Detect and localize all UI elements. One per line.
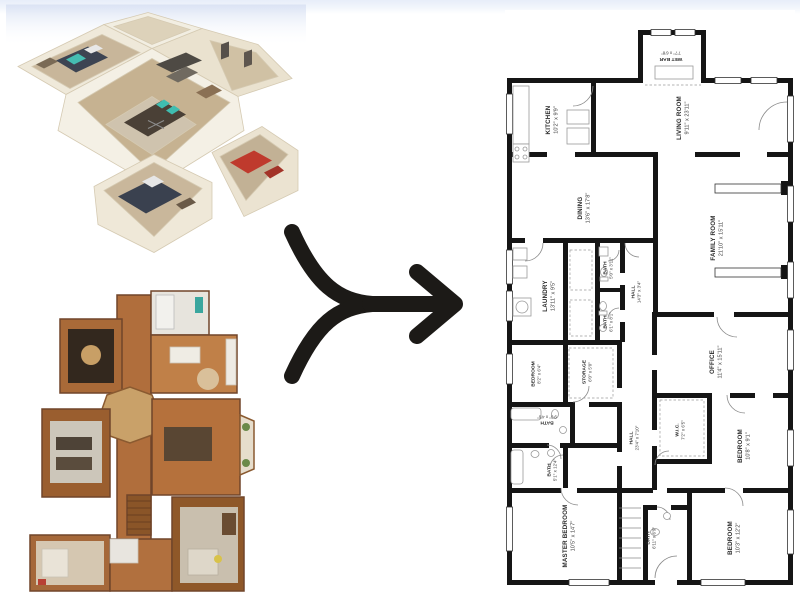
svg-text:10'8" x 9'1": 10'8" x 9'1" (746, 432, 752, 460)
svg-text:9'3" x 4'6": 9'3" x 4'6" (537, 415, 557, 420)
room-label-wet-bar: WET BAR 7'7" x 6'8" (659, 51, 682, 63)
svg-text:10'2" x 9'9": 10'2" x 9'9" (554, 106, 560, 134)
svg-text:6'0" x 5'0": 6'0" x 5'0" (588, 362, 593, 382)
dollhouse-rooms (18, 13, 298, 253)
svg-text:KITCHEN: KITCHEN (545, 105, 552, 134)
photo-rooms (30, 291, 254, 591)
svg-text:WET BAR: WET BAR (659, 56, 682, 62)
svg-text:BEDROOM: BEDROOM (727, 521, 734, 555)
svg-text:7'2" x 6'5": 7'2" x 6'5" (681, 420, 686, 440)
svg-text:MASTER BEDROOM: MASTER BEDROOM (562, 505, 569, 568)
merge-arrow-icon (278, 213, 496, 403)
svg-text:11'4" x 15'11": 11'4" x 15'11" (718, 346, 724, 379)
svg-text:9'11" x 23'11": 9'11" x 23'11" (685, 102, 691, 135)
svg-text:DINING: DINING (577, 197, 584, 220)
svg-text:OFFICE: OFFICE (709, 350, 716, 374)
svg-text:7'7" x 6'8": 7'7" x 6'8" (661, 51, 681, 56)
svg-text:5'0" x 3'11": 5'0" x 3'11" (609, 257, 614, 279)
svg-text:8'2" x 6'4": 8'2" x 6'4" (537, 364, 542, 384)
scene: WET BAR 7'7" x 6'8" KITCHEN 10'2" x 9'9"… (0, 0, 800, 600)
svg-text:5'1" x 12'4": 5'1" x 12'4" (553, 459, 558, 482)
room-label-storage: STORAGE 6'0" x 5'0" (582, 359, 593, 384)
schematic-floorplan: WET BAR 7'7" x 6'8" KITCHEN 10'2" x 9'9"… (505, 8, 795, 592)
photo-floorplan-view (12, 286, 292, 598)
svg-text:14'3" x 3'4": 14'3" x 3'4" (637, 281, 642, 304)
room-label-bedroom-small: BEDROOM 8'2" x 6'4" (531, 361, 542, 387)
svg-text:21'10" x 15'11": 21'10" x 15'11" (719, 220, 725, 257)
dollhouse-3d-view (6, 4, 306, 270)
svg-text:10'3" x 12'2": 10'3" x 12'2" (736, 523, 742, 554)
svg-text:BEDROOM: BEDROOM (737, 429, 744, 463)
svg-text:LIVING ROOM: LIVING ROOM (676, 96, 683, 140)
svg-text:FAMILY ROOM: FAMILY ROOM (710, 215, 717, 260)
svg-text:13'11" x 9'5": 13'11" x 9'5" (551, 281, 557, 311)
svg-text:13'6" x 17'8": 13'6" x 17'8" (586, 193, 592, 224)
svg-text:10'5" x 14'7": 10'5" x 14'7" (571, 521, 577, 552)
svg-text:LAUNDRY: LAUNDRY (542, 280, 549, 312)
svg-text:6'1" x 8'1": 6'1" x 8'1" (609, 312, 614, 332)
svg-text:6'11" x 6'9": 6'11" x 6'9" (652, 527, 657, 549)
svg-text:23'4" x 7'10": 23'4" x 7'10" (635, 425, 640, 450)
